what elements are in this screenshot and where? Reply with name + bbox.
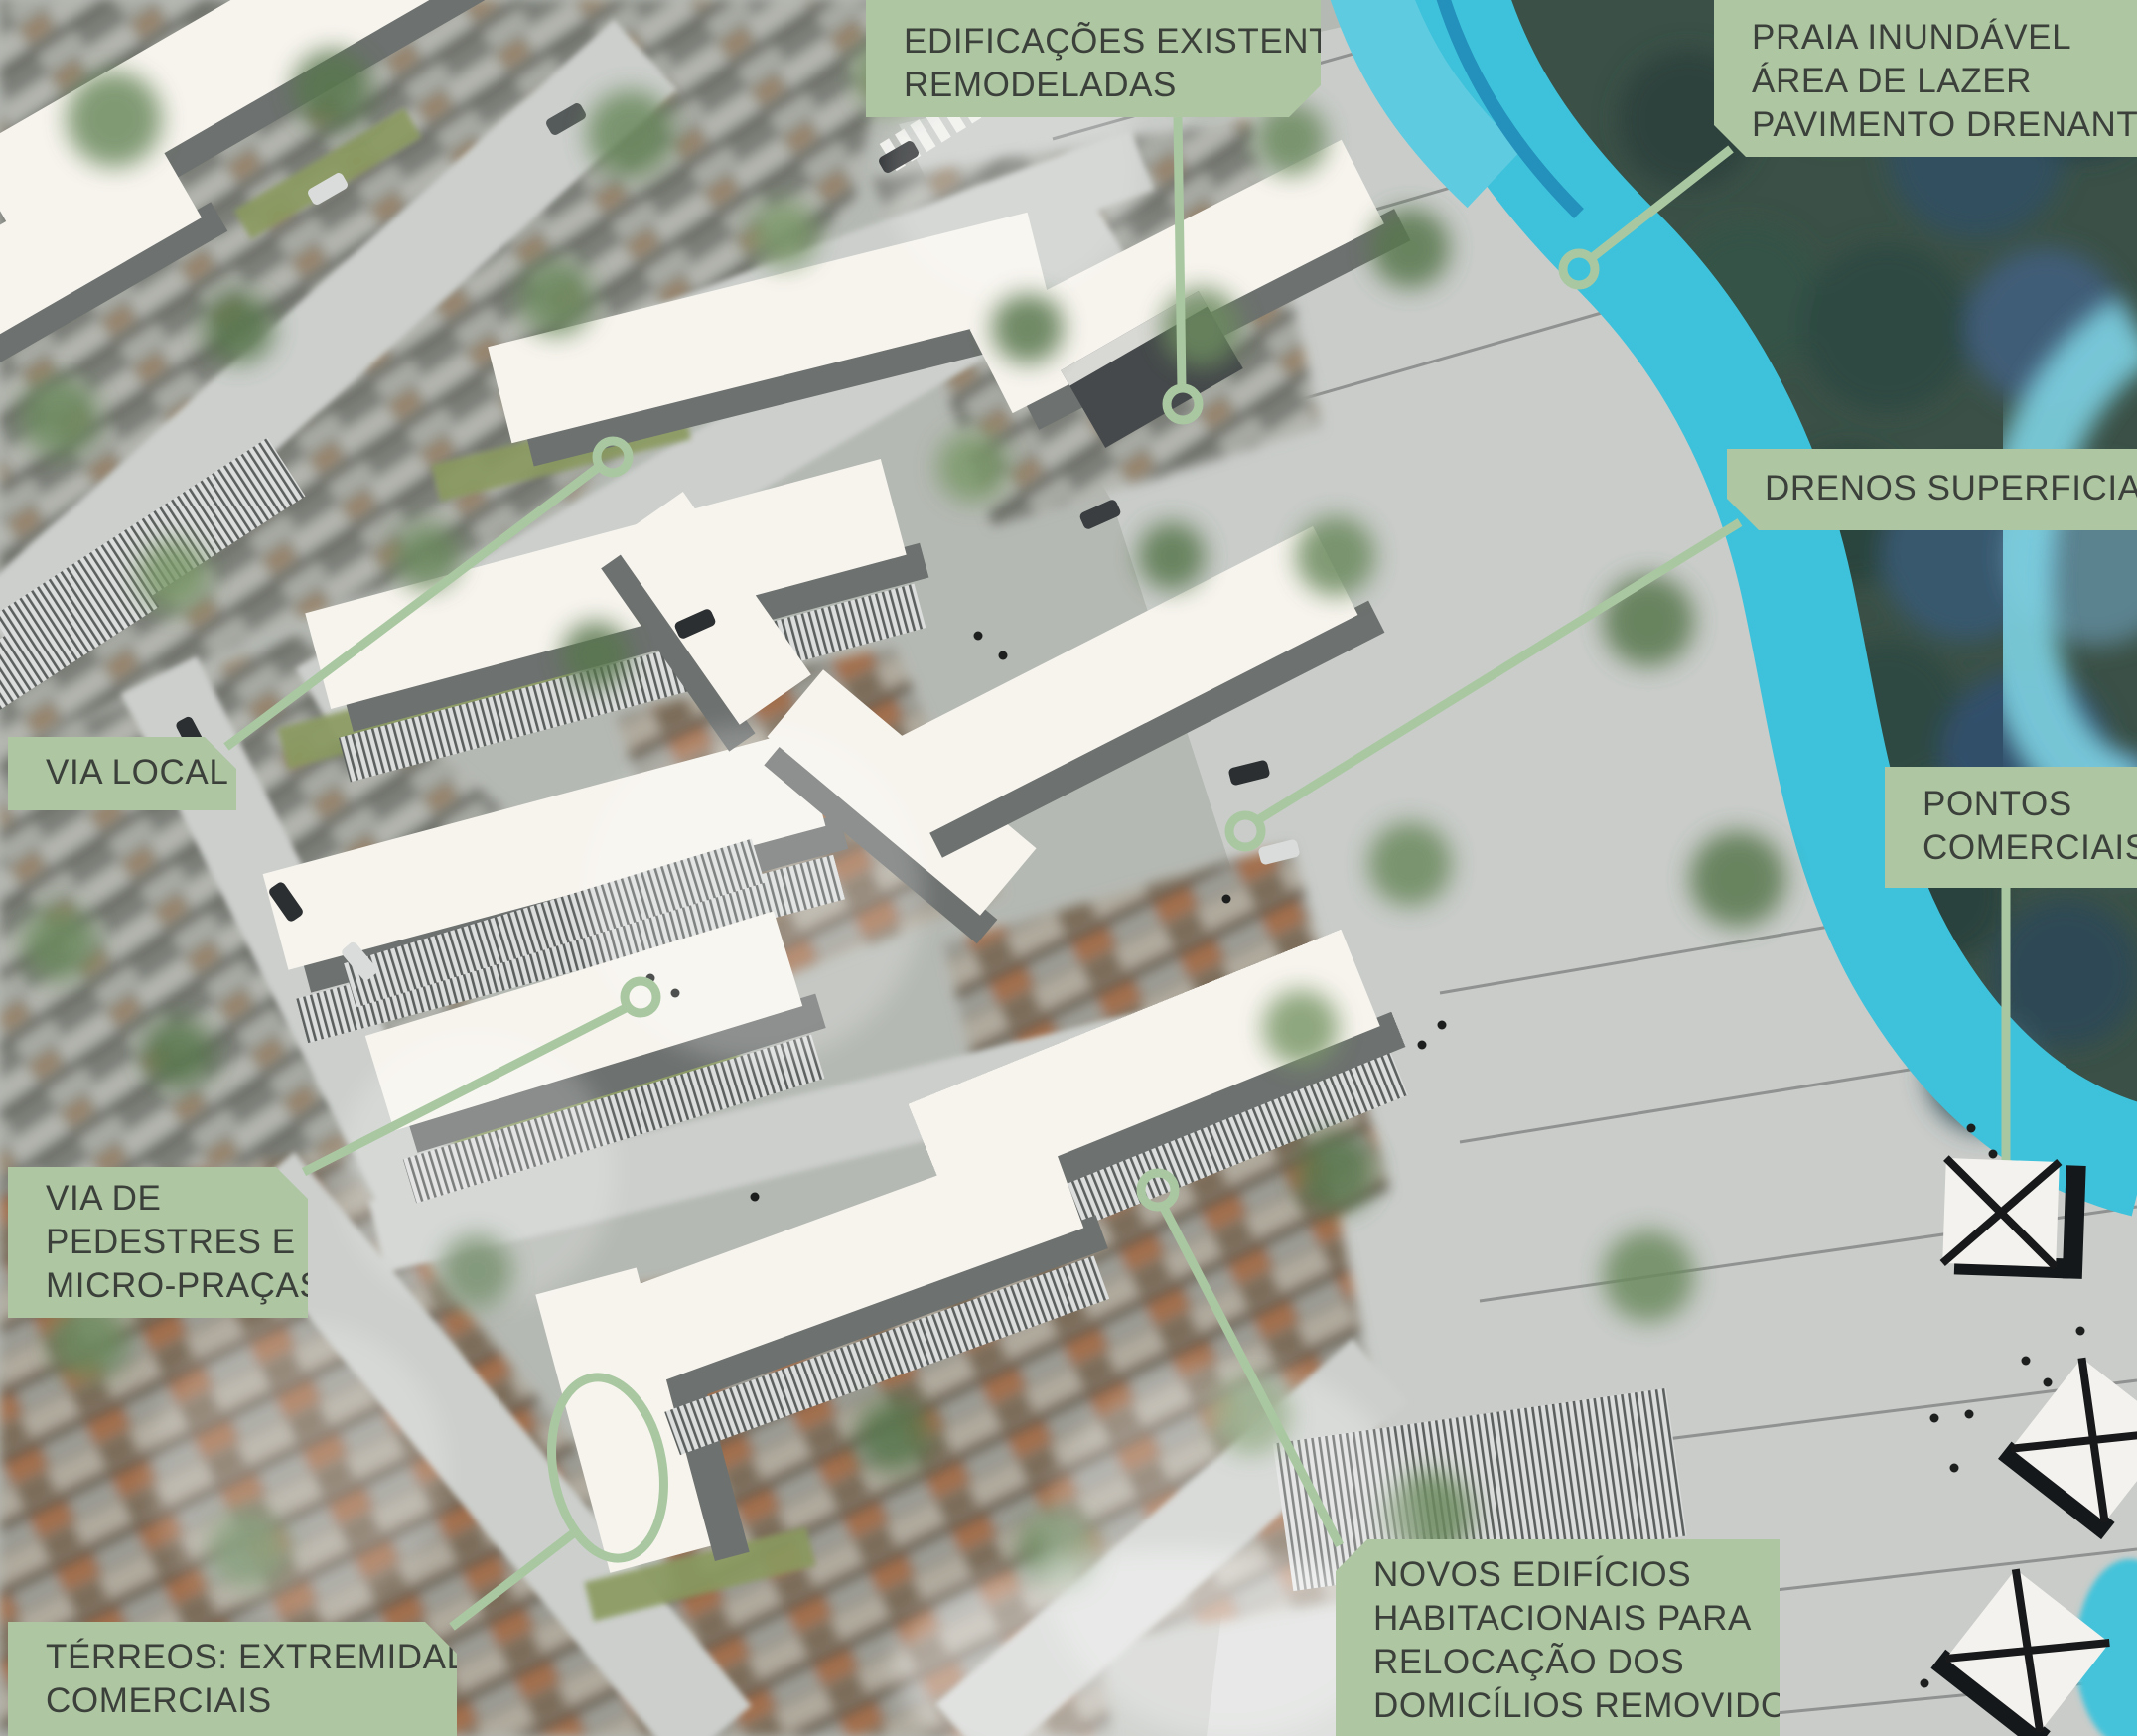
aerial-plan-background [0,0,2137,1736]
label-line: RELOCAÇÃO DOS [1373,1641,1780,1684]
label-line: PRAIA INUNDÁVEL [1752,16,2137,60]
label-terreos-comerciais: TÉRREOS: EXTREMIDADES COMERCIAIS [8,1622,457,1736]
label-drenos-superficiais: DRENOS SUPERFICIAIS [1727,449,2137,530]
label-line: DRENOS SUPERFICIAIS [1765,467,2137,510]
label-praia-inundavel: PRAIA INUNDÁVEL ÁREA DE LAZER PAVIMENTO … [1714,0,2137,157]
masterplan-canvas: EDIFICAÇÕES EXISTENTES REMODELADAS PRAIA… [0,0,2137,1736]
label-line: MICRO-PRAÇAS [46,1264,308,1308]
label-line: COMERCIAIS [1923,826,2137,870]
label-pontos-comerciais: PONTOS COMERCIAIS [1885,767,2137,888]
label-line: PONTOS [1923,783,2137,826]
label-novos-edificios: NOVOS EDIFÍCIOS HABITACIONAIS PARA RELOC… [1336,1539,1780,1736]
label-line: TÉRREOS: EXTREMIDADES [46,1636,457,1679]
label-via-local: VIA LOCAL [8,737,236,810]
label-line: EDIFICAÇÕES EXISTENTES [904,20,1321,64]
label-line: HABITACIONAIS PARA [1373,1597,1780,1641]
label-edificacoes-existentes: EDIFICAÇÕES EXISTENTES REMODELADAS [866,0,1321,117]
label-line: NOVOS EDIFÍCIOS [1373,1553,1780,1597]
label-line: VIA LOCAL [46,751,236,795]
label-line: VIA DE [46,1177,308,1221]
label-line: REMODELADAS [904,64,1321,107]
label-line: PAVIMENTO DRENANTE [1752,103,2137,147]
label-line: ÁREA DE LAZER [1752,60,2137,103]
label-via-pedestres: VIA DE PEDESTRES E MICRO-PRAÇAS [8,1167,308,1318]
label-line: COMERCIAIS [46,1679,457,1723]
label-line: PEDESTRES E [46,1221,308,1264]
label-line: DOMICÍLIOS REMOVIDOS [1373,1684,1780,1728]
